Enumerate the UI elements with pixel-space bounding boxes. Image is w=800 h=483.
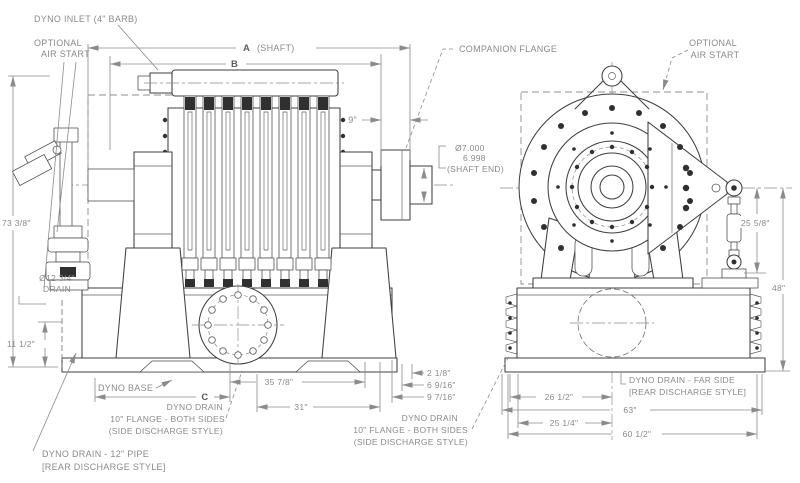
label-side-drain-right-2: 10" FLANGE - BOTH SIDES bbox=[353, 425, 468, 435]
label-side-drain-right-1: DYNO DRAIN bbox=[402, 413, 458, 423]
dyno-drawing-canvas: A (SHAFT) B 9" DYNO INLET (4" BARB) OPTI… bbox=[0, 0, 800, 483]
side-view bbox=[12, 70, 455, 372]
label-air-start-right-2: AIR START bbox=[691, 50, 740, 60]
label-shaft-end: (SHAFT END) bbox=[447, 164, 504, 174]
dyno-base-end bbox=[517, 288, 750, 358]
label-rear-drain-2: [REAR DISCHARGE STYLE] bbox=[42, 462, 166, 472]
right-pedestal bbox=[322, 248, 396, 358]
right-shaft bbox=[372, 170, 381, 200]
dim-link-height: 25 5/8" bbox=[741, 218, 770, 228]
side-discharge-flange-left bbox=[506, 294, 517, 354]
dim-off-9: 9 7/16" bbox=[427, 392, 456, 402]
shaft-end-stub bbox=[410, 166, 432, 204]
label-companion-flange: COMPANION FLANGE bbox=[459, 44, 557, 54]
dim-31: 31" bbox=[294, 402, 307, 412]
label-far-drain-1: DYNO DRAIN - FAR SIDE bbox=[629, 375, 735, 385]
dim-overall-height: 73 3/8" bbox=[2, 218, 31, 228]
right-bearing-pedestal-top bbox=[340, 152, 372, 248]
label-side-drain-right-3: (SIDE DISCHARGE STYLE) bbox=[354, 437, 468, 447]
left-pedestal bbox=[116, 248, 190, 358]
dim-off-6: 6 9/16" bbox=[427, 380, 456, 390]
label-air-start-left-2: AIR START bbox=[41, 49, 90, 59]
label-side-drain-3: (SIDE DISCHARGE STYLE) bbox=[109, 426, 223, 436]
dim-b: B bbox=[231, 59, 238, 70]
dim-35: 35 7/8" bbox=[265, 377, 294, 387]
engineering-drawing: A (SHAFT) B 9" DYNO INLET (4" BARB) OPTI… bbox=[0, 0, 800, 483]
label-air-start-left-1: OPTIONAL bbox=[34, 38, 82, 48]
label-rear-drain-1: DYNO DRAIN - 12" PIPE bbox=[42, 449, 149, 459]
dim-foot-height: 11 1/2" bbox=[7, 339, 35, 349]
label-drain-word: DRAIN bbox=[43, 284, 71, 294]
left-shaft bbox=[88, 169, 134, 201]
label-far-drain-2: [REAR DISCHARGE STYLE] bbox=[629, 387, 746, 397]
dim-25: 25 1/4" bbox=[550, 418, 579, 428]
label-drain-dia: Ø12 3/4" bbox=[39, 273, 75, 283]
label-dyno-base: DYNO BASE bbox=[98, 383, 153, 393]
label-side-drain-2: 10" FLANGE - BOTH SIDES bbox=[110, 414, 225, 424]
side-discharge-flange-right bbox=[750, 294, 761, 354]
dim-cl-height: 48" bbox=[772, 283, 785, 293]
dim-26: 26 1/2" bbox=[545, 392, 574, 402]
shaft-end-circle bbox=[600, 175, 624, 199]
label-shaft-dia-max: Ø7.000 bbox=[455, 143, 485, 153]
dim-60: 60 1/2" bbox=[623, 429, 652, 439]
label-side-drain-1: DYNO DRAIN bbox=[167, 402, 223, 412]
dim-a: A bbox=[243, 43, 250, 54]
base-plate-end bbox=[505, 358, 765, 372]
left-bearing-pedestal-top bbox=[134, 152, 172, 248]
label-shaft-dia-min: 6.998 bbox=[463, 153, 486, 163]
dim-off-2: 2 1/8" bbox=[427, 368, 451, 378]
dim-63: 63" bbox=[623, 405, 636, 415]
companion-flange-hub bbox=[381, 150, 410, 220]
dim-shaft-ext: 9" bbox=[348, 115, 357, 125]
dim-a-note: (SHAFT) bbox=[257, 43, 295, 53]
label-dyno-inlet: DYNO INLET (4" BARB) bbox=[34, 14, 138, 24]
label-air-start-right-1: OPTIONAL bbox=[689, 38, 737, 48]
